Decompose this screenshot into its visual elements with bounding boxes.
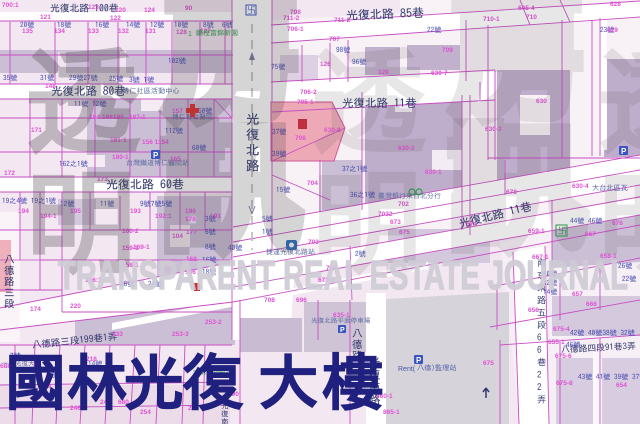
svg-text:174: 174 bbox=[30, 306, 41, 313]
svg-text:629: 629 bbox=[607, 27, 618, 34]
svg-text:172: 172 bbox=[4, 170, 15, 177]
svg-text:675-4: 675-4 bbox=[553, 326, 570, 333]
svg-text:120: 120 bbox=[115, 7, 126, 14]
svg-text:123: 123 bbox=[88, 4, 99, 11]
svg-text:134: 134 bbox=[54, 28, 65, 35]
svg-text:666: 666 bbox=[586, 301, 597, 308]
svg-text:P: P bbox=[621, 147, 627, 156]
svg-text:P: P bbox=[416, 356, 422, 365]
svg-text:180-1: 180-1 bbox=[112, 154, 129, 161]
svg-text:696: 696 bbox=[296, 297, 307, 304]
svg-text:711-2: 711-2 bbox=[334, 17, 351, 24]
svg-text:655-1: 655-1 bbox=[548, 339, 565, 346]
svg-text:133: 133 bbox=[88, 28, 99, 35]
svg-text:704: 704 bbox=[307, 180, 318, 187]
svg-text:675-8: 675-8 bbox=[556, 380, 573, 387]
svg-text:TRANSPARENT REAL ESTATE JOURNA: TRANSPARENT REAL ESTATE JOURNAL bbox=[58, 252, 628, 298]
svg-text:630-1: 630-1 bbox=[425, 169, 442, 176]
svg-text:218: 218 bbox=[86, 356, 97, 363]
svg-text:705-1: 705-1 bbox=[297, 99, 314, 106]
svg-text:194: 194 bbox=[18, 208, 29, 215]
svg-text:121: 121 bbox=[40, 14, 51, 21]
svg-text:675: 675 bbox=[483, 360, 494, 367]
svg-text:220: 220 bbox=[70, 303, 81, 310]
svg-text:122: 122 bbox=[110, 15, 121, 22]
svg-text:169-1: 169-1 bbox=[133, 244, 150, 251]
svg-text:233: 233 bbox=[112, 331, 123, 338]
svg-text:193: 193 bbox=[130, 208, 141, 215]
svg-text:635-1: 635-1 bbox=[333, 312, 350, 319]
svg-text:131: 131 bbox=[145, 28, 156, 35]
svg-text:707: 707 bbox=[329, 36, 340, 43]
svg-text:656: 656 bbox=[528, 307, 539, 314]
svg-text:706: 706 bbox=[295, 135, 306, 142]
svg-text:148: 148 bbox=[45, 83, 56, 90]
svg-text:709: 709 bbox=[442, 47, 453, 54]
svg-text:703: 703 bbox=[308, 239, 319, 246]
svg-text:132: 132 bbox=[118, 28, 129, 35]
svg-text:675-6: 675-6 bbox=[555, 353, 572, 360]
svg-text:246: 246 bbox=[70, 405, 81, 412]
svg-text:630-7: 630-7 bbox=[431, 70, 448, 77]
svg-text:P: P bbox=[153, 151, 159, 160]
svg-text:124: 124 bbox=[144, 7, 155, 14]
svg-text:171: 171 bbox=[31, 127, 42, 134]
svg-text:706-2: 706-2 bbox=[300, 89, 317, 96]
svg-text:P: P bbox=[340, 327, 345, 334]
svg-text:254: 254 bbox=[140, 409, 151, 416]
svg-text:654: 654 bbox=[616, 382, 627, 389]
svg-text:865-1: 865-1 bbox=[383, 409, 400, 416]
svg-text:187-1: 187-1 bbox=[129, 114, 146, 121]
svg-text:253-2: 253-2 bbox=[205, 319, 222, 326]
svg-text:253-3: 253-3 bbox=[172, 331, 189, 338]
svg-text:700:1: 700:1 bbox=[2, 2, 19, 9]
svg-text:628: 628 bbox=[610, 1, 621, 8]
svg-text:706-1: 706-1 bbox=[287, 26, 304, 33]
svg-text:708: 708 bbox=[264, 297, 275, 304]
svg-text:Rent(: Rent( bbox=[398, 366, 416, 373]
svg-text:630-4: 630-4 bbox=[572, 183, 589, 190]
svg-text:135: 135 bbox=[22, 28, 33, 35]
